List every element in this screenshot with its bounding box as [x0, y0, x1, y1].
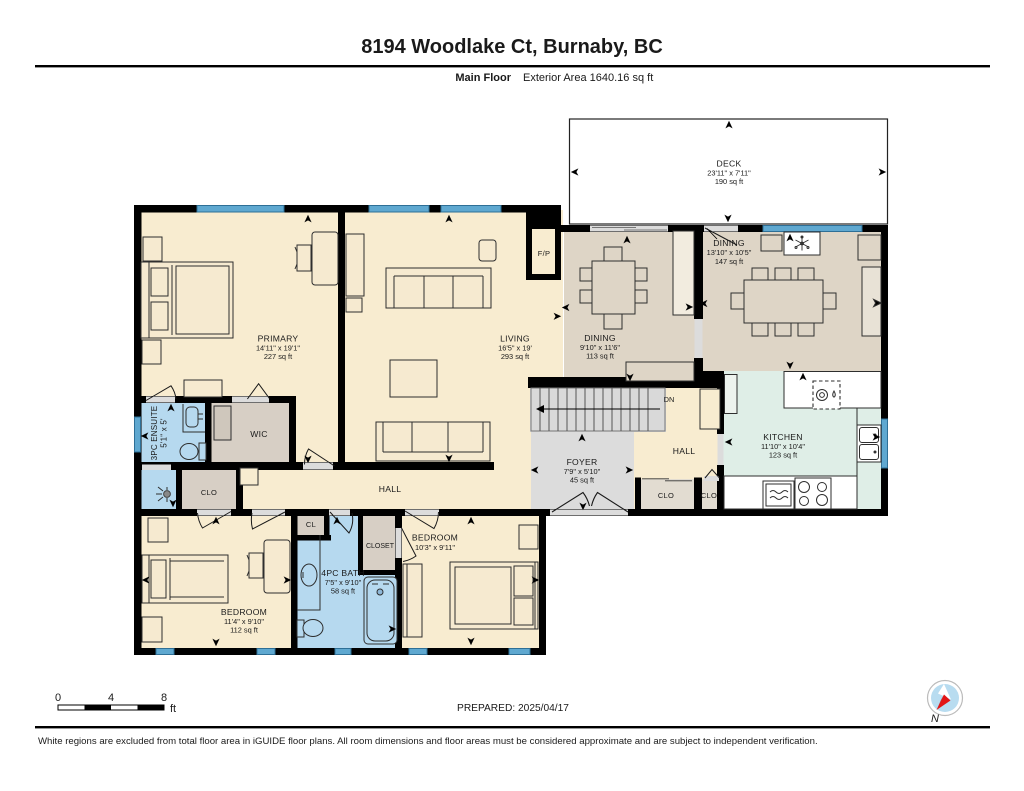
svg-text:13'10" x 10'5": 13'10" x 10'5" [707, 248, 752, 257]
svg-text:FOYER: FOYER [567, 457, 598, 467]
svg-text:CLO: CLO [201, 488, 217, 497]
svg-text:CLO: CLO [658, 491, 674, 500]
svg-text:HALL: HALL [673, 446, 696, 456]
svg-text:N: N [931, 713, 939, 725]
svg-text:227 sq ft: 227 sq ft [264, 352, 292, 361]
svg-text:190 sq ft: 190 sq ft [715, 177, 743, 186]
svg-text:DN: DN [664, 395, 675, 404]
svg-text:WIC: WIC [250, 429, 267, 439]
svg-text:BEDROOM: BEDROOM [221, 607, 267, 617]
svg-text:113 sq ft: 113 sq ft [586, 352, 614, 361]
svg-text:LIVING: LIVING [500, 334, 530, 344]
svg-text:0: 0 [55, 692, 61, 704]
svg-text:Exterior Area 1640.16 sq ft: Exterior Area 1640.16 sq ft [523, 72, 653, 84]
svg-text:8: 8 [161, 692, 167, 704]
svg-text:BEDROOM: BEDROOM [412, 533, 458, 543]
svg-text:CLOSET: CLOSET [366, 543, 395, 550]
svg-text:CL: CL [306, 520, 316, 529]
svg-text:3PC ENSUITE: 3PC ENSUITE [150, 406, 159, 461]
svg-text:4PC BATH: 4PC BATH [321, 568, 364, 578]
svg-text:DECK: DECK [717, 159, 742, 169]
svg-text:ft: ft [170, 703, 176, 715]
svg-text:White regions are excluded fro: White regions are excluded from total fl… [38, 736, 818, 747]
svg-text:F/P: F/P [538, 249, 551, 258]
svg-text:58 sq ft: 58 sq ft [331, 587, 355, 596]
svg-text:KITCHEN: KITCHEN [763, 432, 802, 442]
svg-text:4: 4 [108, 692, 114, 704]
svg-text:5'1" x 5': 5'1" x 5' [160, 418, 169, 448]
svg-text:293 sq ft: 293 sq ft [501, 352, 529, 361]
svg-text:123 sq ft: 123 sq ft [769, 451, 797, 460]
svg-text:DINING: DINING [713, 238, 745, 248]
svg-text:147 sq ft: 147 sq ft [715, 257, 743, 266]
svg-text:112 sq ft: 112 sq ft [230, 626, 258, 635]
svg-text:HALL: HALL [379, 484, 402, 494]
svg-text:CLO: CLO [701, 491, 717, 500]
svg-text:PREPARED: 2025/04/17: PREPARED: 2025/04/17 [457, 703, 569, 714]
svg-text:DINING: DINING [584, 333, 616, 343]
svg-text:45 sq ft: 45 sq ft [570, 476, 594, 485]
svg-text:Main Floor: Main Floor [455, 72, 511, 84]
svg-text:10'3" x 9'11": 10'3" x 9'11" [415, 543, 455, 552]
svg-text:8194 Woodlake Ct, Burnaby, BC: 8194 Woodlake Ct, Burnaby, BC [361, 36, 663, 58]
svg-text:PRIMARY: PRIMARY [258, 334, 299, 344]
